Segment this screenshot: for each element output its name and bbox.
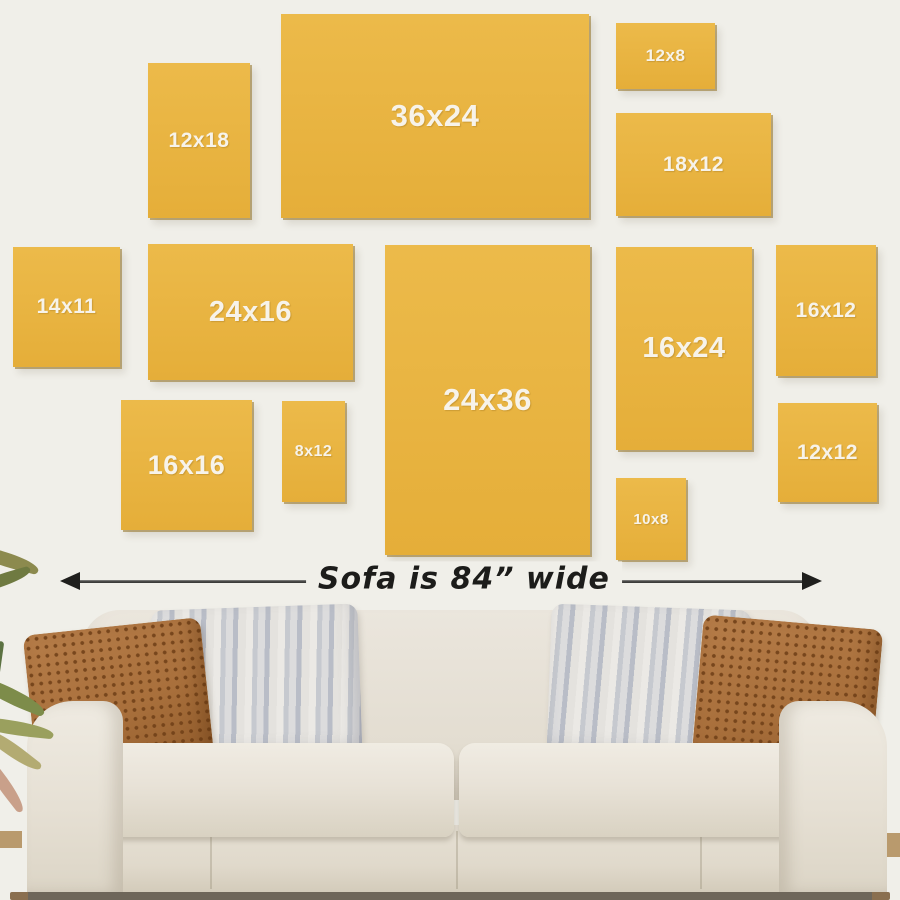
frame-16x12: 16x12	[776, 245, 876, 376]
base-seam	[456, 831, 458, 889]
arrowhead-left-icon	[60, 572, 80, 590]
base-seam	[700, 831, 702, 889]
frame-12x8: 12x8	[616, 23, 715, 89]
frame-16x16: 16x16	[121, 400, 252, 530]
frame-24x36: 24x36	[385, 245, 590, 555]
sofa-width-measure: Sofa is 84” wide	[60, 562, 822, 600]
frame-size-label: 8x12	[295, 443, 333, 461]
frame-10x8: 10x8	[616, 478, 686, 560]
frame-size-label: 12x18	[169, 129, 230, 153]
frame-size-label: 24x16	[209, 296, 292, 329]
frame-size-label: 12x12	[797, 441, 858, 465]
frame-size-label: 14x11	[37, 295, 97, 319]
frame-size-label: 16x24	[642, 332, 725, 365]
frame-18x12: 18x12	[616, 113, 771, 216]
floor-patch	[0, 831, 22, 848]
frame-14x11: 14x11	[13, 247, 120, 367]
frame-size-label: 16x12	[796, 299, 857, 323]
sofa-width-label: Sofa is 84” wide	[306, 561, 622, 596]
frame-24x16: 24x16	[148, 244, 353, 380]
sofa-armrest-right	[779, 701, 887, 893]
frame-size-label: 18x12	[663, 153, 724, 177]
plant-leaf-icon	[0, 566, 33, 596]
frame-36x24: 36x24	[281, 14, 589, 218]
frame-size-label: 16x16	[148, 450, 226, 481]
frame-12x12: 12x12	[778, 403, 877, 502]
base-seam	[210, 831, 212, 889]
frame-12x18: 12x18	[148, 63, 250, 218]
size-guide-scene: 12x18 36x24 12x8 18x12 14x11 24x16 24x36…	[0, 0, 900, 900]
frame-size-label: 24x36	[443, 382, 532, 418]
frame-size-label: 10x8	[633, 511, 668, 528]
arrowhead-right-icon	[802, 572, 822, 590]
frame-size-label: 36x24	[391, 98, 480, 134]
frame-size-label: 12x8	[646, 46, 686, 66]
frame-16x24: 16x24	[616, 247, 752, 450]
frame-8x12: 8x12	[282, 401, 345, 502]
floor-shadow	[10, 892, 890, 900]
